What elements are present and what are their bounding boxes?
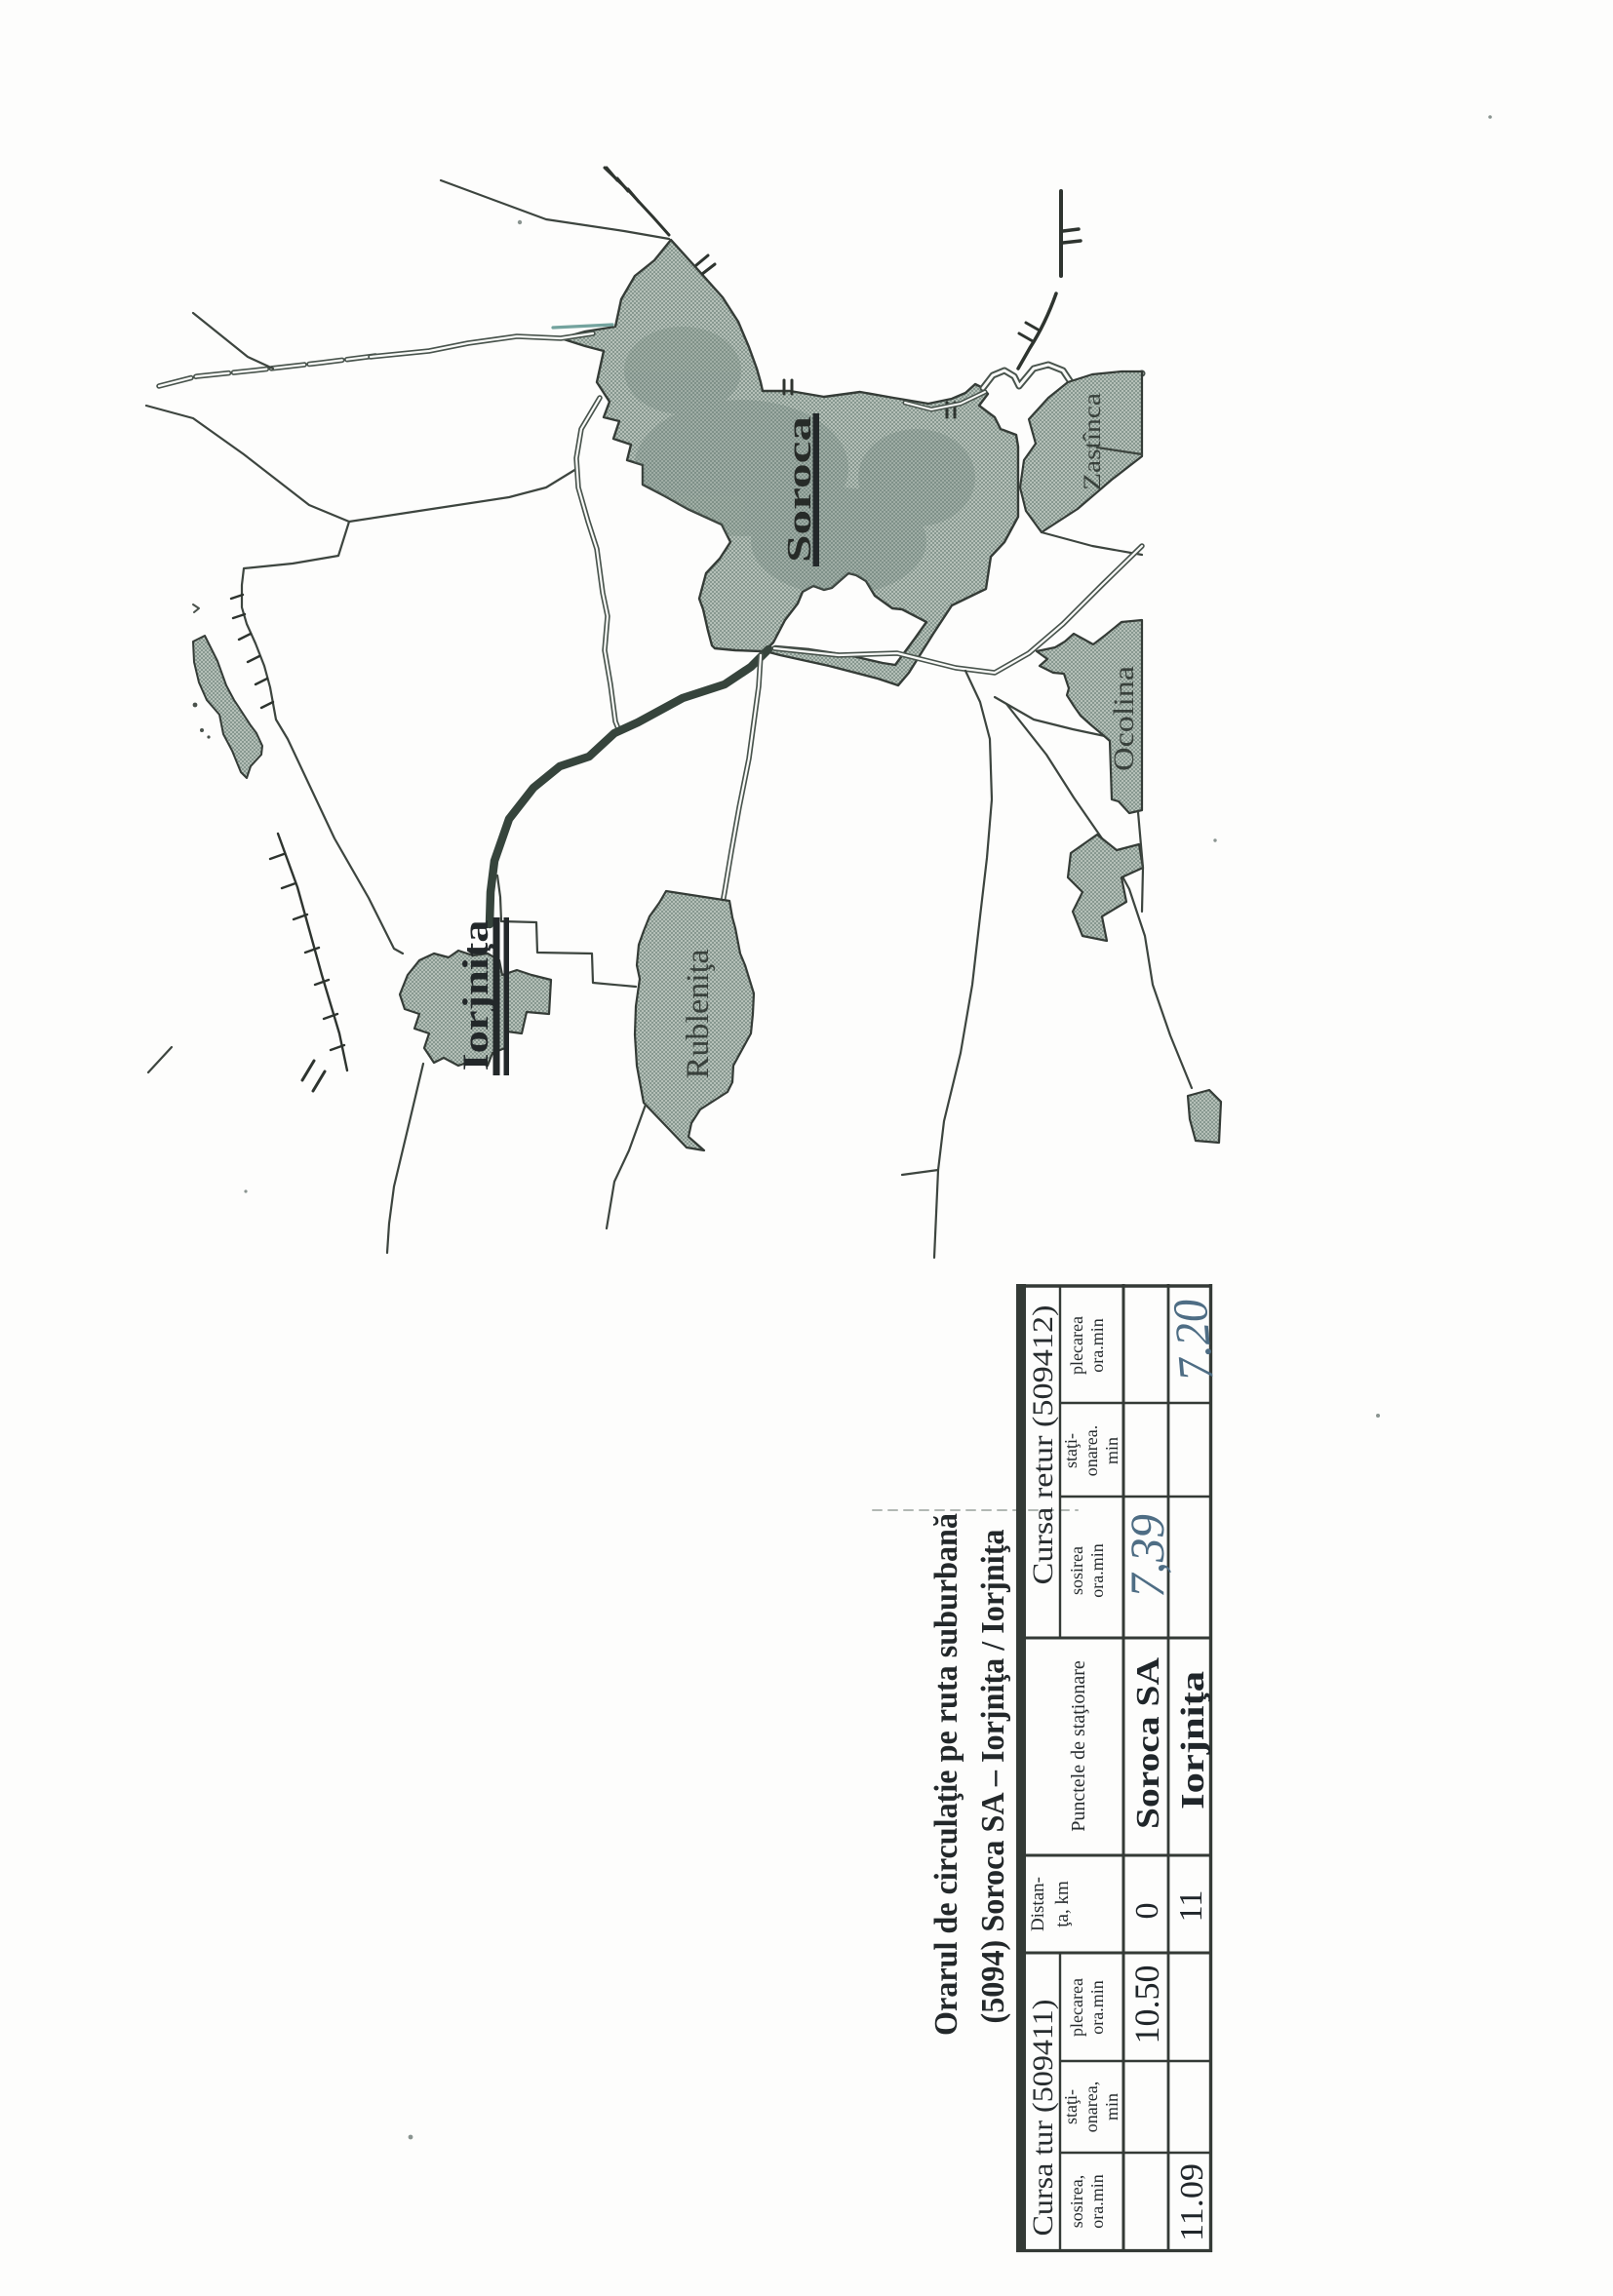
svg-text:plecarea: plecarea — [1067, 1316, 1086, 1375]
svg-text:min: min — [1102, 1437, 1121, 1464]
svg-text:onarea.: onarea. — [1082, 1425, 1101, 1476]
svg-text:Rubleniţa: Rubleniţa — [681, 949, 716, 1078]
svg-text:ţa, km: ţa, km — [1052, 1881, 1073, 1927]
svg-text:11.09: 11.09 — [1174, 2163, 1210, 2241]
svg-text:Orarul de circulaţie pe ruta s: Orarul de circulaţie pe ruta suburbană — [928, 1513, 964, 2036]
svg-text:10.50: 10.50 — [1127, 1965, 1166, 2044]
svg-text:7.20: 7.20 — [1162, 1297, 1224, 1383]
svg-text:Cursa tur (509411): Cursa tur (509411) — [1027, 2000, 1059, 2237]
svg-text:0: 0 — [1129, 1903, 1165, 1920]
svg-text:Soroca SA: Soroca SA — [1130, 1656, 1166, 1829]
svg-text:Iorjniţa: Iorjniţa — [456, 920, 496, 1071]
svg-text:(5094) Soroca SA – Iorjniţa /: (5094) Soroca SA – Iorjniţa / Iorjniţa — [975, 1530, 1011, 2024]
svg-text:staţi-: staţi- — [1061, 1433, 1081, 1468]
svg-text:min: min — [1102, 2093, 1121, 2121]
svg-text:plecarea: plecarea — [1067, 1978, 1086, 2037]
svg-text:ora.min: ora.min — [1087, 1543, 1107, 1598]
svg-text:Distan-: Distan- — [1028, 1877, 1048, 1931]
svg-text:Soroca: Soroca — [780, 416, 818, 563]
svg-text:sosirea: sosirea — [1067, 1546, 1086, 1595]
svg-text:ora.min: ora.min — [1087, 2174, 1107, 2229]
svg-text:ora.min: ora.min — [1087, 1980, 1107, 2035]
svg-text:Cursa retur (509412): Cursa retur (509412) — [1027, 1305, 1059, 1585]
svg-text:Zastînca: Zastînca — [1080, 393, 1106, 490]
svg-text:Iorjniţa: Iorjniţa — [1175, 1671, 1211, 1810]
svg-text:7,39: 7,39 — [1120, 1514, 1174, 1598]
svg-text:staţi-: staţi- — [1061, 2089, 1081, 2124]
svg-text:ora.min: ora.min — [1087, 1318, 1107, 1373]
svg-text:onarea,: onarea, — [1082, 2082, 1101, 2132]
svg-text:11: 11 — [1173, 1890, 1209, 1923]
svg-text:Ocolina: Ocolina — [1108, 666, 1140, 771]
svg-text:sosirea,: sosirea, — [1067, 2175, 1086, 2228]
svg-text:Punctele de staţionare: Punctele de staţionare — [1068, 1660, 1089, 1832]
